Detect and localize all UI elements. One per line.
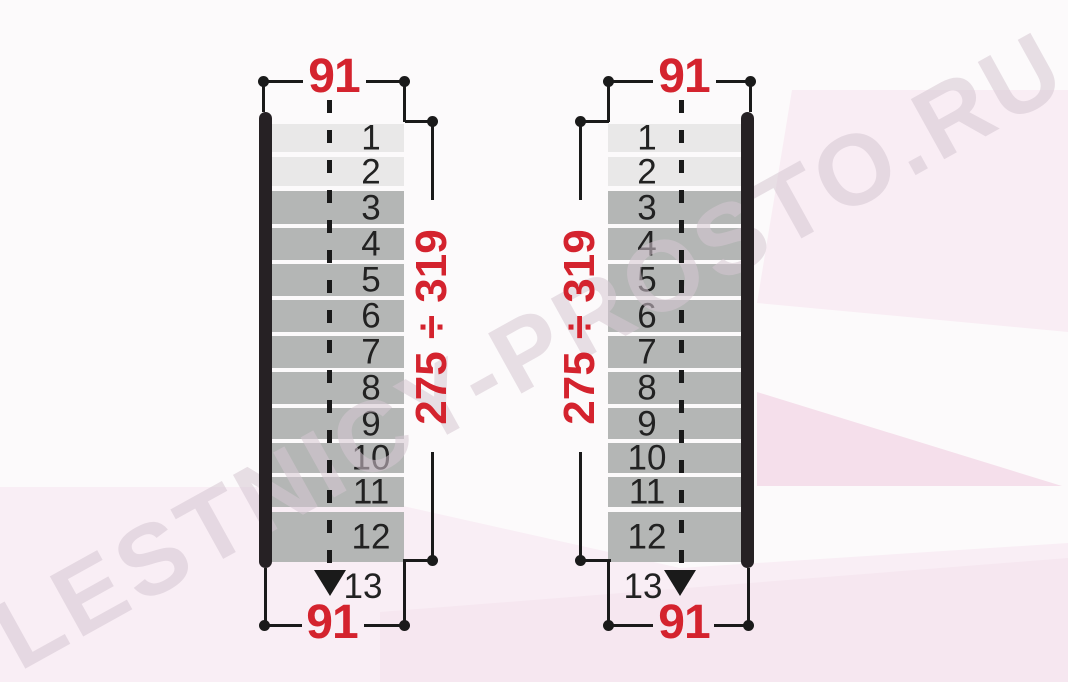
dimension-extender	[749, 81, 752, 112]
dimension-line-vertical	[579, 452, 582, 562]
step-number: 4	[336, 227, 406, 262]
dimension-extender	[607, 81, 610, 122]
stair-tread: 10	[608, 443, 741, 473]
bottom-width-label: 91	[644, 598, 724, 648]
step-number: 5	[336, 263, 406, 298]
stair-tread: 7	[272, 336, 404, 368]
step-number: 6	[336, 299, 406, 334]
stair-tread: 6	[272, 300, 404, 332]
stair-tread: 8	[608, 372, 741, 404]
dimension-connector	[403, 559, 433, 562]
step-number: 11	[612, 475, 682, 510]
stair-plan-diagram: 123456789101112 13 91 275 ÷ 319 91 12345…	[0, 0, 1068, 682]
length-range-label: 275 ÷ 319	[407, 197, 457, 457]
stair-tread: 4	[272, 228, 404, 260]
stair-tread: 12	[608, 512, 741, 562]
top-width-label: 91	[644, 52, 724, 102]
stair-tread: 1	[608, 124, 741, 152]
stair-tread: 5	[272, 264, 404, 296]
step-number: 8	[612, 371, 682, 406]
dimension-line-vertical	[431, 452, 434, 562]
step-number: 12	[612, 520, 682, 555]
step-number: 2	[612, 154, 682, 189]
dimension-extender	[607, 562, 610, 626]
step-number: 12	[336, 520, 406, 555]
stringer-bar-left	[259, 112, 272, 568]
step-number: 1	[612, 121, 682, 156]
dimension-line-vertical	[579, 122, 582, 200]
step-number: 2	[336, 154, 406, 189]
stair-tread: 9	[608, 408, 741, 439]
bottom-width-label: 91	[292, 598, 372, 648]
walking-direction-arrow	[664, 570, 696, 596]
dimension-extender	[264, 568, 267, 626]
step-number: 9	[612, 406, 682, 441]
stair-tread: 3	[272, 191, 404, 224]
dimension-extender	[403, 562, 406, 626]
stair-tread: 11	[608, 477, 741, 507]
step-number: 3	[336, 190, 406, 225]
length-range-label: 275 ÷ 319	[555, 197, 605, 457]
walking-line-dashed	[327, 100, 332, 566]
walking-line-dashed	[679, 100, 684, 566]
stair-tread: 1	[272, 124, 404, 152]
dimension-line-vertical	[431, 122, 434, 200]
step-number: 10	[612, 441, 682, 476]
dimension-extender	[403, 81, 406, 122]
top-width-label: 91	[294, 52, 374, 102]
stringer-bar-right	[741, 112, 754, 568]
dimension-extender	[262, 81, 265, 112]
dimension-extender	[747, 568, 750, 626]
step-number: 1	[336, 121, 406, 156]
stair-tread: 2	[272, 157, 404, 186]
